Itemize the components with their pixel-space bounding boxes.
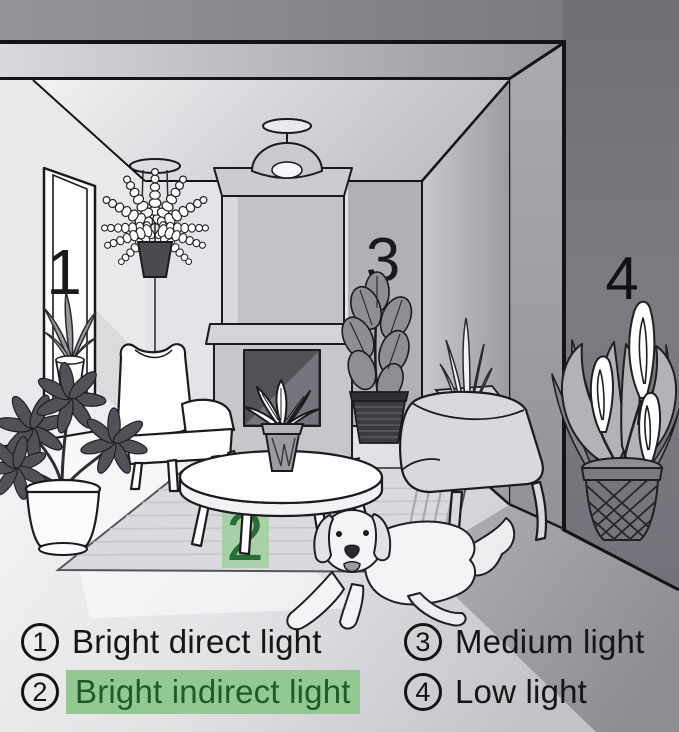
legend: 1 Bright direct light 2 Bright indirect … — [0, 608, 679, 732]
legend-circled-number-2: 2 — [21, 673, 59, 711]
lamp-bulb — [272, 162, 302, 178]
legend-circled-number-3: 3 — [404, 623, 442, 661]
legend-label-medium: Medium light — [455, 623, 644, 661]
table-plant-pot — [262, 424, 303, 434]
legend-item-bright-indirect: 2 Bright indirect light — [21, 670, 360, 714]
legend-item-bright-direct: 1 Bright direct light — [21, 620, 322, 664]
lily-pot-rim — [582, 468, 662, 480]
marker-4: 4 — [605, 245, 638, 312]
plant-light-guide-illustration: 1 3 — [0, 0, 679, 732]
rubber-plant-pot — [350, 392, 408, 401]
fern-pot — [138, 242, 172, 277]
schefflera-pot — [27, 492, 99, 546]
marker-1: 1 — [46, 236, 82, 308]
legend-circled-number-1: 1 — [21, 623, 59, 661]
dog-tongue — [344, 562, 360, 572]
legend-label-bright-direct: Bright direct light — [72, 623, 322, 661]
legend-label-low: Low light — [455, 673, 587, 711]
legend-item-low: 4 Low light — [404, 670, 587, 714]
legend-item-medium: 3 Medium light — [404, 620, 644, 664]
legend-circled-number-4: 4 — [404, 673, 442, 711]
legend-label-bright-indirect: Bright indirect light — [66, 670, 360, 714]
